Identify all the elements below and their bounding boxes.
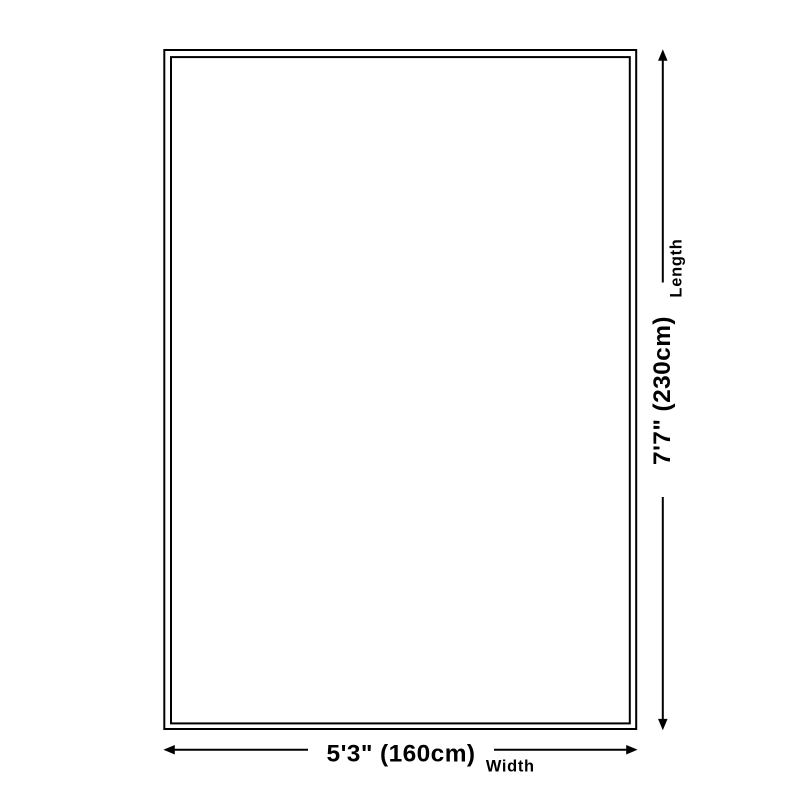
svg-text:7'7" (230cm): 7'7" (230cm): [649, 316, 676, 465]
svg-text:Width: Width: [486, 758, 535, 776]
svg-text:Length: Length: [668, 238, 686, 297]
svg-text:5'3" (160cm): 5'3" (160cm): [327, 740, 476, 767]
